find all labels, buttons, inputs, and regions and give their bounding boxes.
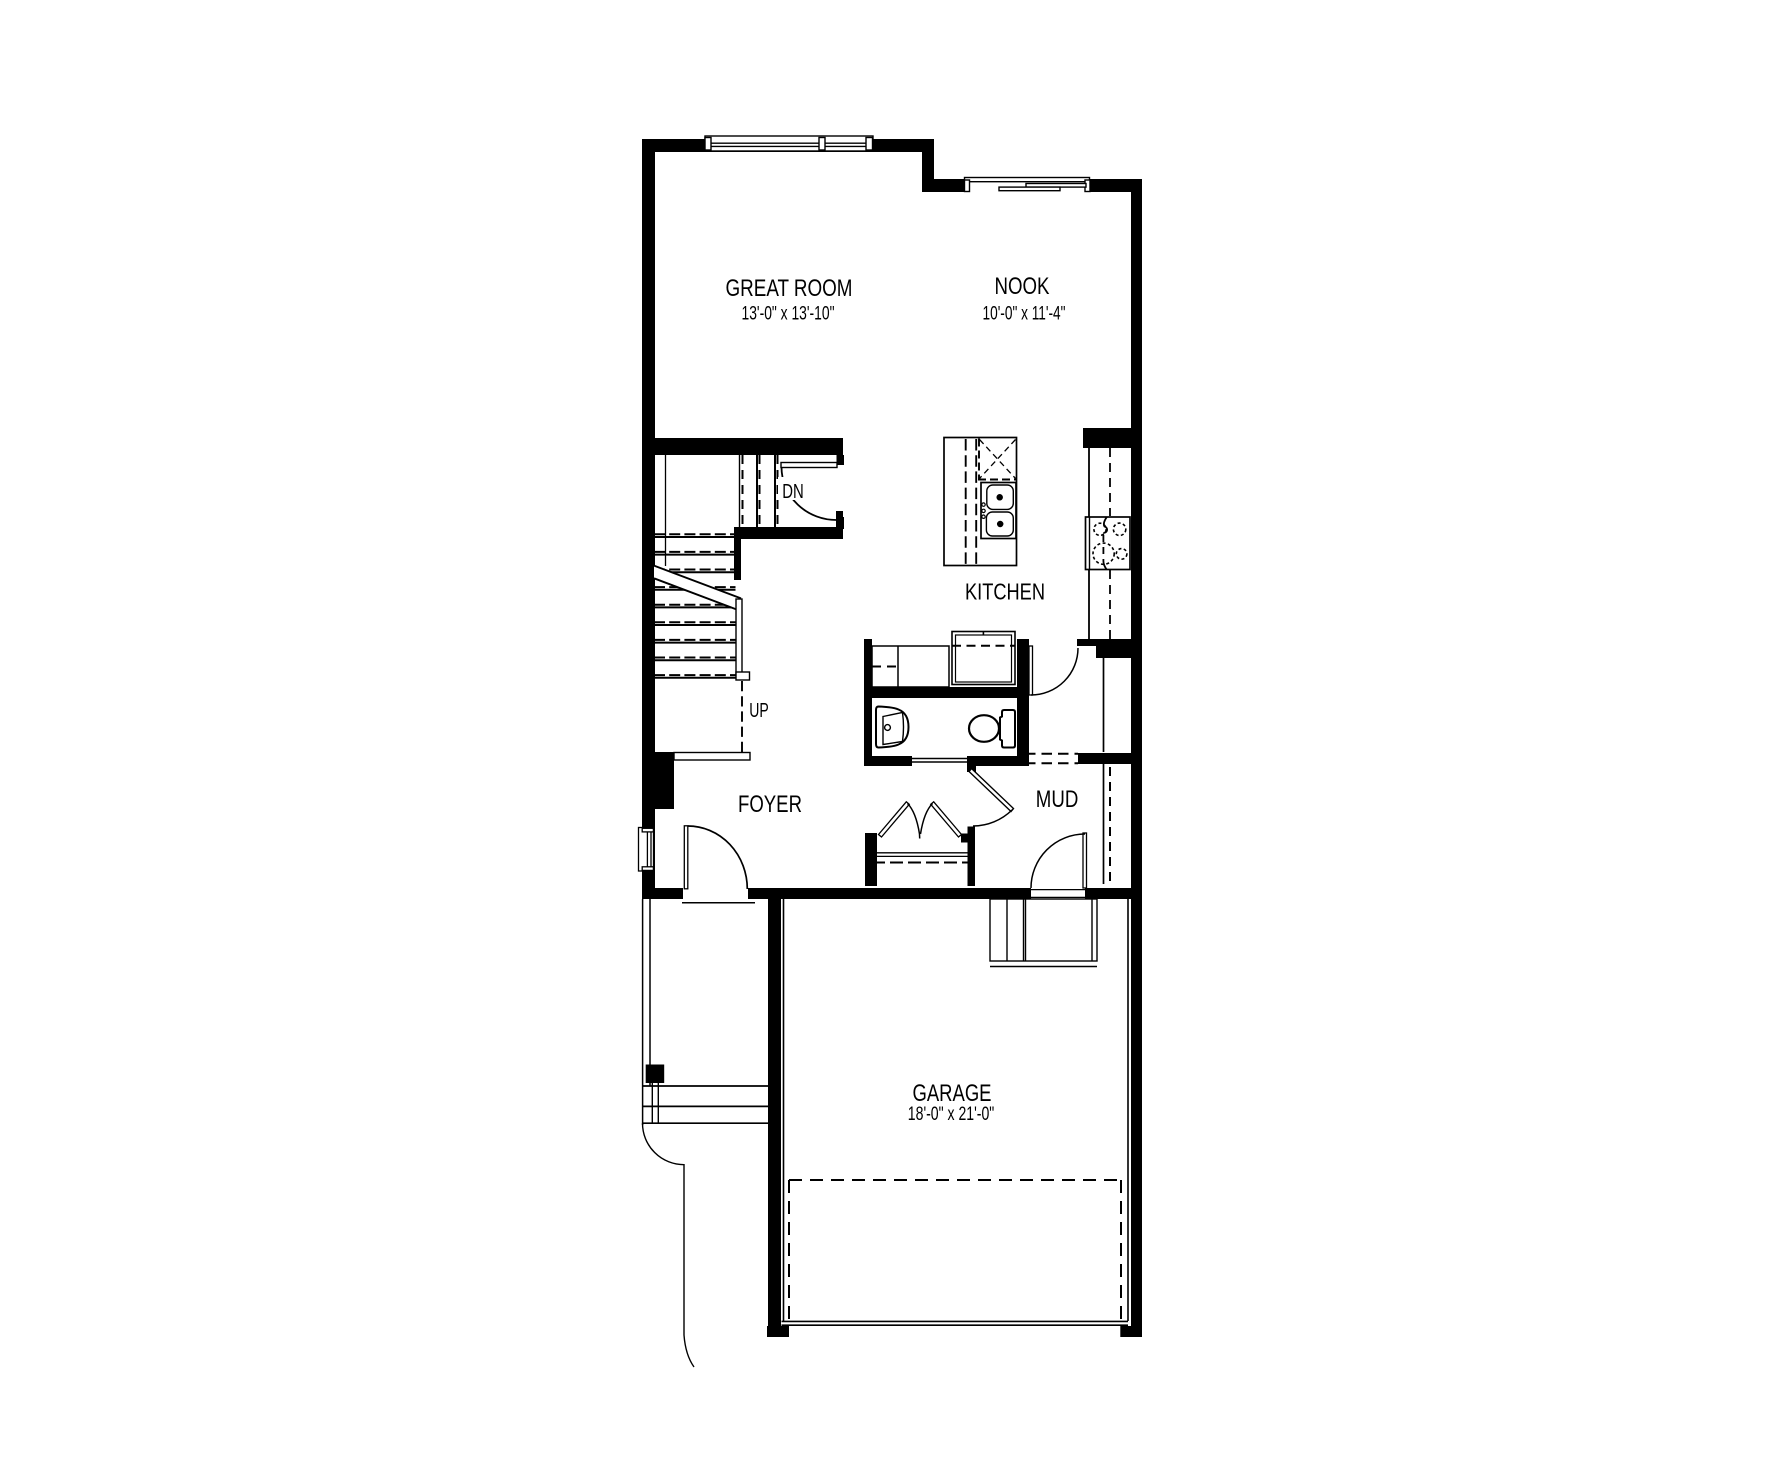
svg-text:NOOK: NOOK bbox=[995, 273, 1050, 300]
svg-text:UP: UP bbox=[749, 700, 769, 722]
svg-text:13'-0" x 13'-10": 13'-0" x 13'-10" bbox=[742, 303, 835, 325]
svg-text:FOYER: FOYER bbox=[738, 791, 802, 818]
svg-text:MUD: MUD bbox=[1036, 786, 1079, 813]
svg-text:18'-0" x 21'-0": 18'-0" x 21'-0" bbox=[908, 1103, 995, 1125]
svg-text:DN: DN bbox=[782, 481, 804, 503]
svg-text:KITCHEN: KITCHEN bbox=[965, 579, 1045, 605]
svg-text:10'-0" x 11'-4": 10'-0" x 11'-4" bbox=[983, 303, 1066, 325]
svg-text:GREAT ROOM: GREAT ROOM bbox=[726, 275, 853, 302]
